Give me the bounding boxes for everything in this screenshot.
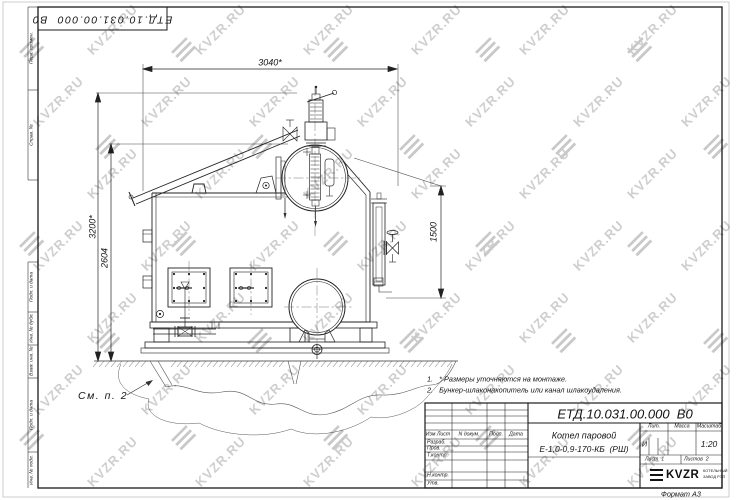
col-doc-no: N докум.: [459, 432, 480, 437]
lifting-lug: [192, 184, 206, 193]
col-date: Дата: [509, 432, 523, 437]
scale-value: 1:20: [701, 440, 718, 449]
access-door: [168, 268, 210, 307]
margin-sign-date: Подп. и дата: [31, 400, 36, 430]
col-sign: Подп.: [489, 432, 503, 437]
safety-valve: [283, 86, 337, 146]
kvzr-caption-1: КОТЕЛЬНЫЙ: [703, 469, 727, 473]
sheet-label: Лист 1: [645, 457, 664, 462]
access-door: [230, 268, 272, 307]
lit-header: Лит.: [648, 424, 660, 429]
valve-lever: [307, 93, 334, 102]
dimension-width-top: 3040*: [258, 59, 282, 68]
front-nozzle: [143, 230, 152, 242]
col-change-sheet: Изм Лист: [426, 432, 450, 437]
drawing-sheet: ЕТД.10.031.00.000 В0 ЕТД.10.031.00.000 В…: [0, 0, 750, 500]
dimension-extension-lines: [96, 64, 446, 298]
corner-stamp-designation: ЕТД.10.031.00.000 В0: [32, 13, 173, 24]
drum-saddle: [325, 330, 335, 342]
lit-value: И: [642, 440, 647, 447]
row-n-control: Н.контр.: [427, 473, 449, 478]
callout-see-note: См. п. 2: [78, 391, 128, 402]
note-2: 2. Бункер-шлаконакопитель или канал шлак…: [427, 386, 622, 393]
product-name-line2: Е-1,0-0,9-170-КБ (РШ): [539, 445, 628, 454]
row-t-control: Т.контр.: [427, 453, 448, 458]
drum-saddle: [299, 330, 309, 342]
mass-header: Масса: [674, 424, 689, 429]
product-name-line1: Котел паровой: [552, 432, 617, 441]
dimension-height-drum: 2604: [101, 248, 110, 268]
steam-valve: [384, 231, 399, 263]
kvzr-logo-icon: [650, 469, 663, 481]
margin-inv-orig: Инв. № подл.: [31, 455, 36, 485]
margin-sign-date: Подп. и дата: [31, 272, 36, 302]
margin-repl-inv: Взам. инв. №: [31, 346, 36, 376]
row-approved: Утв.: [427, 481, 439, 486]
dimension-lines: [95, 66, 443, 361]
front-nozzle: [143, 276, 152, 288]
rear-panel: [371, 193, 392, 292]
chimney-jib: [129, 130, 300, 206]
margin-inv-dup: Инв. № дубл.: [31, 313, 36, 343]
note-1: 1. * Размеры уточняются на монтаже.: [427, 375, 567, 382]
blowdown-valve: [312, 345, 322, 360]
foundation-pit: [93, 361, 458, 435]
row-developed: Разраб.: [427, 440, 446, 445]
dimension-height-rear: 1500: [430, 222, 439, 242]
handwheel: [387, 231, 398, 235]
boiler-drawing: [0, 0, 750, 500]
title-block-designation: ЕТД.10.031.00.000 В0: [557, 407, 692, 420]
kvzr-caption-2: ЗАВОД РЭП: [703, 475, 725, 479]
dimension-height-overall: 3200*: [89, 215, 98, 239]
kvzr-logo-text: KVZR: [666, 469, 699, 481]
row-checked: Пров.: [427, 446, 441, 451]
drain-piping: [153, 282, 219, 337]
scale-header: Масштаб: [697, 424, 721, 429]
callout-leader: [127, 380, 153, 395]
sheets-label: Листов 2: [684, 457, 709, 462]
margin-first-use: Перв. примен.: [31, 32, 36, 64]
margin-ref-number: Справ. №: [31, 124, 36, 146]
format-label: Формат А3: [661, 490, 701, 497]
